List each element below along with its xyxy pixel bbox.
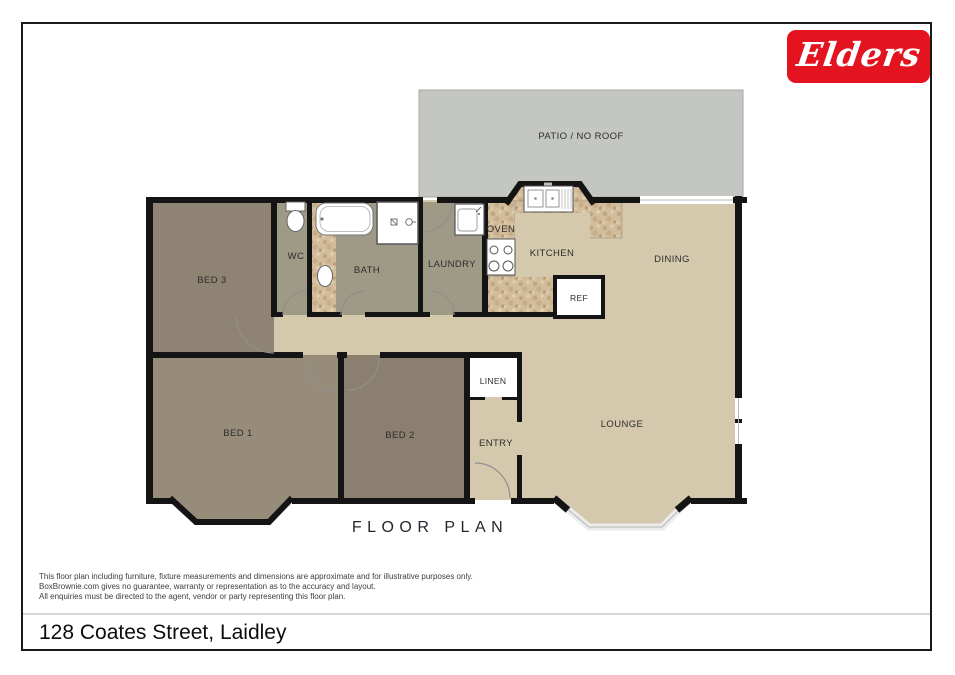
lounge-bay-window [554, 498, 691, 527]
bed1-label: BED 1 [223, 428, 252, 439]
separator-line [23, 613, 930, 615]
cooktop [487, 239, 515, 275]
disclaimer-text: This floor plan including furniture, fix… [39, 572, 473, 602]
lounge-label: LOUNGE [601, 419, 644, 430]
floor-plan-title: FLOOR PLAN [300, 519, 560, 537]
bed2-label: BED 2 [385, 430, 414, 441]
bed1-floor [150, 355, 343, 498]
patio-label: PATIO / NO ROOF [538, 131, 623, 142]
entry-label: ENTRY [479, 438, 513, 449]
laundry-tub [455, 204, 484, 235]
wc-label: WC [288, 251, 305, 262]
bed3-label: BED 3 [197, 275, 226, 286]
floor-plan-drawing: PATIO / NO ROOF BED 3 WC BATH LAUNDRY OV… [140, 80, 760, 540]
disclaimer-line-2: BoxBrownie.com gives no guarantee, warra… [39, 582, 473, 592]
dining-label: DINING [654, 254, 690, 265]
ref-label: REF [570, 293, 588, 303]
bed2-floor [343, 355, 467, 498]
property-address: 128 Coates Street, Laidley [39, 621, 287, 645]
shower [377, 202, 418, 244]
toilet [286, 202, 305, 232]
kitchen-label: KITCHEN [530, 248, 575, 259]
linen-label: LINEN [480, 376, 507, 386]
bath-label: BATH [354, 265, 380, 276]
laundry-label: LAUNDRY [428, 259, 476, 270]
patio-area [419, 90, 743, 197]
oven-label: OVEN [487, 224, 516, 235]
vanity-basin [318, 266, 333, 287]
floor-plan-page: { "page": { "logo_text": "Elders", "titl… [0, 0, 955, 675]
bathtub [316, 203, 373, 235]
disclaimer-line-1: This floor plan including furniture, fix… [39, 572, 473, 582]
kitchen-sink [524, 183, 573, 213]
elders-logo-text: Elders [794, 35, 924, 78]
elders-logo: Elders [787, 30, 930, 83]
bed1-bay-window [170, 498, 292, 522]
disclaimer-line-3: All enquiries must be directed to the ag… [39, 592, 473, 602]
